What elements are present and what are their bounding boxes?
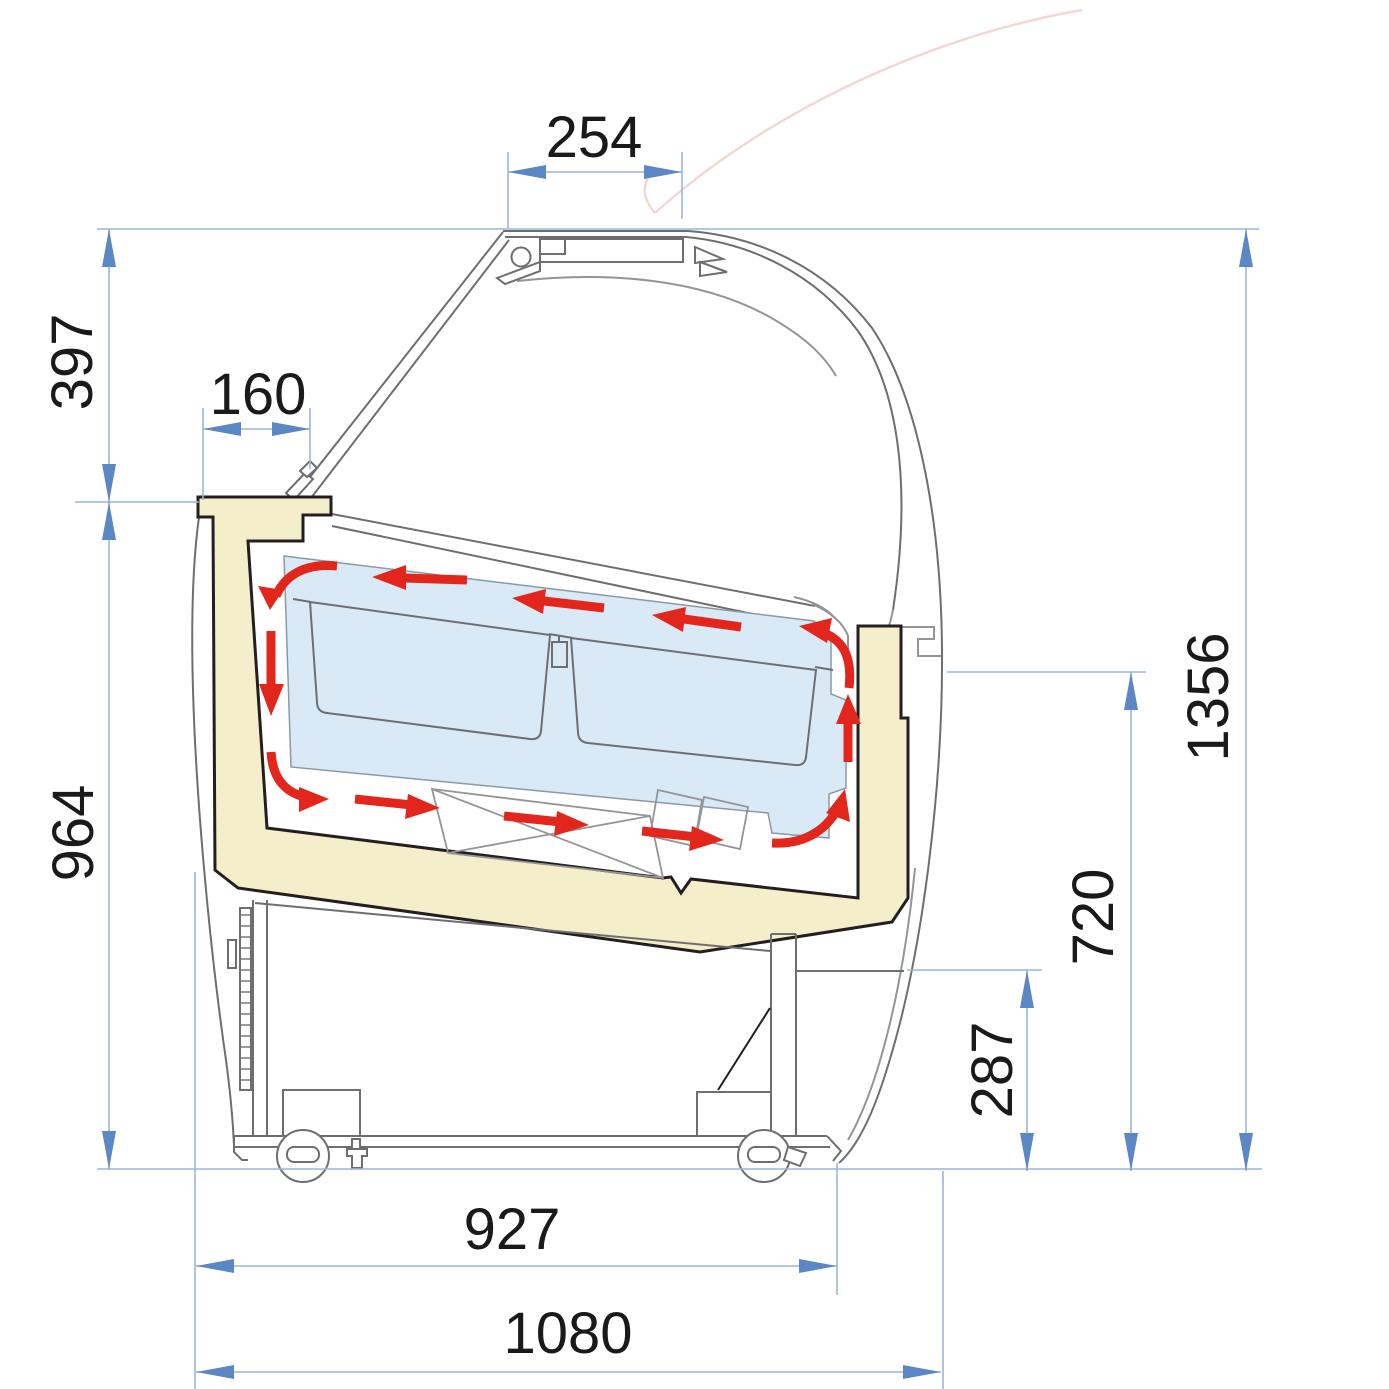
swing-arc-hook xyxy=(645,178,655,213)
arrowhead-1356-bottom xyxy=(1239,1133,1253,1171)
dim-label-1356: 1356 xyxy=(1176,632,1241,761)
arrowhead-397-bottom xyxy=(102,464,116,502)
airflow-arrow-left-down xyxy=(259,631,284,716)
casters-and-feet xyxy=(277,1130,806,1182)
dim-label-1080: 1080 xyxy=(503,1301,632,1366)
flip-glass-outer xyxy=(299,232,503,491)
hinge-pivot-icon xyxy=(512,248,531,267)
refrigerated-well xyxy=(284,556,846,838)
glass-end-clip-upper xyxy=(695,247,723,263)
arrowhead-1356-top xyxy=(1239,229,1253,267)
inner-glass-curve xyxy=(505,237,901,610)
dim-label-964: 964 xyxy=(41,785,106,882)
condenser-grille xyxy=(240,908,251,1090)
dim-label-160: 160 xyxy=(210,362,307,427)
foot-stem-left xyxy=(352,1139,360,1149)
lamp-housing-bracket xyxy=(540,239,565,254)
arrowhead-927-left xyxy=(196,1259,234,1273)
left-mount-box xyxy=(283,1090,360,1136)
arrowhead-254-left xyxy=(508,165,546,179)
canopy-inner-skin xyxy=(517,277,836,376)
arrowhead-927-right xyxy=(799,1259,837,1273)
arrowhead-287-bottom xyxy=(1020,1133,1034,1171)
arrowhead-964-bottom xyxy=(102,1131,116,1169)
arrowhead-397-top xyxy=(102,229,116,267)
arrowhead-1080-left xyxy=(196,1365,234,1379)
lamp-housing xyxy=(540,239,683,262)
dim-label-927: 927 xyxy=(464,1197,561,1262)
display-case-section-drawing: 254 397 160 1356 964 720 287 927 1080 xyxy=(0,0,1389,1389)
flip-glass-inner xyxy=(311,240,509,498)
return-air-duct-lip xyxy=(794,597,835,618)
caster-fork-left xyxy=(287,1147,319,1162)
caster-fork-right xyxy=(748,1147,780,1162)
arrowhead-254-right xyxy=(644,165,682,179)
leveling-foot-left xyxy=(347,1149,367,1168)
dim-label-287: 287 xyxy=(960,1022,1025,1119)
grille-bracket xyxy=(228,940,236,968)
airflow-arrow-bottom-1 xyxy=(355,794,440,819)
arrowhead-964-top xyxy=(102,502,116,540)
arrowhead-287-top xyxy=(1020,970,1034,1008)
dim-label-254: 254 xyxy=(546,105,643,170)
glass-support-step xyxy=(901,627,941,656)
technical-drawing-page: 254 397 160 1356 964 720 287 927 1080 xyxy=(0,0,1389,1389)
base-frame-right-end xyxy=(827,1136,841,1161)
base-frame xyxy=(228,900,904,1161)
arrowhead-1080-right xyxy=(903,1365,941,1379)
glass-end-clip-lower xyxy=(700,262,727,276)
diagonal-brace xyxy=(718,1008,770,1090)
glass-swing-arc xyxy=(645,10,1082,213)
arrowhead-720-top xyxy=(1124,672,1138,710)
dim-label-397: 397 xyxy=(40,314,105,411)
arrowhead-720-bottom xyxy=(1124,1133,1138,1171)
swing-arc-path xyxy=(655,10,1082,213)
dim-label-720: 720 xyxy=(1061,869,1126,966)
